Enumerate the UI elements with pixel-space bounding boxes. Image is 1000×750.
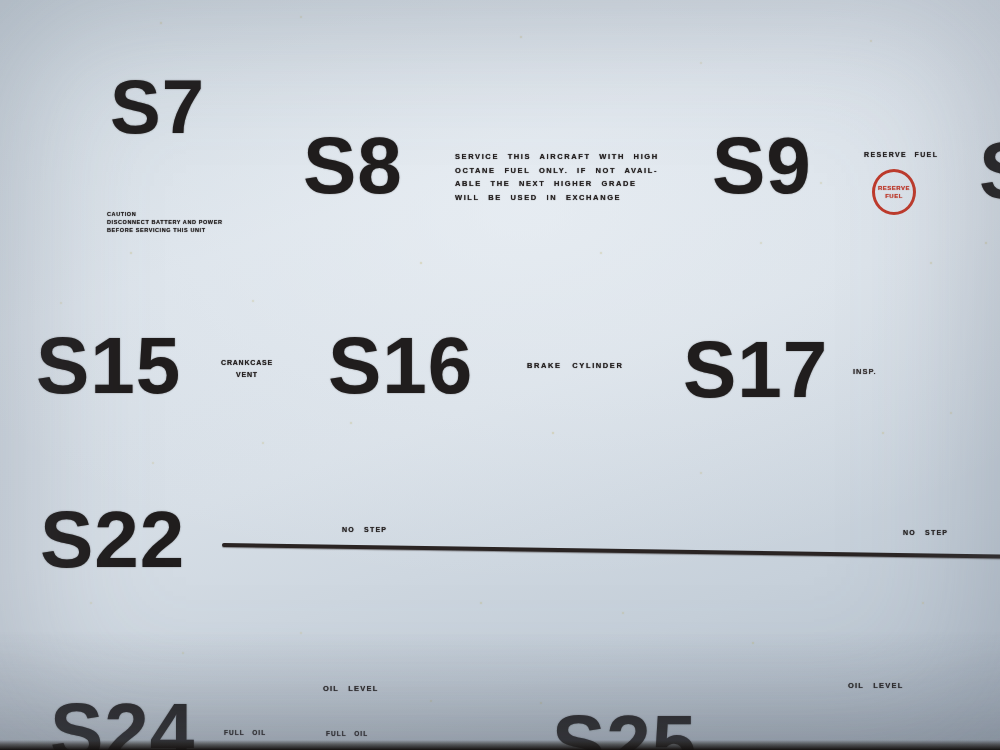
stencil-number-s17: S17 xyxy=(683,330,828,410)
stencil-text-caution: CAUTION DISCONNECT BATTERY AND POWER BEF… xyxy=(107,210,223,234)
stencil-text-oil-level-left: OIL LEVEL xyxy=(323,684,378,693)
stencil-number-s8: S8 xyxy=(303,126,403,206)
stencil-number-s15: S15 xyxy=(36,326,181,406)
caution-line-3: BEFORE SERVICING THIS UNIT xyxy=(107,226,223,234)
stencil-number-s16: S16 xyxy=(328,326,473,406)
reserve-fuel-roundel-icon: RESERVE FUEL xyxy=(872,169,916,215)
stencil-number-s22: S22 xyxy=(40,500,185,580)
fuel-service-line-3: ABLE THE NEXT HIGHER GRADE xyxy=(455,177,659,191)
stencil-text-no-step-left: NO STEP xyxy=(342,526,387,533)
stencil-number-s9: S9 xyxy=(712,126,812,206)
caution-line-2: DISCONNECT BATTERY AND POWER xyxy=(107,218,223,226)
stencil-text-fragment-1: FULL OIL xyxy=(224,729,266,736)
fuel-service-line-2: OCTANE FUEL ONLY. IF NOT AVAIL- xyxy=(455,164,659,178)
fuel-service-line-1: SERVICE THIS AIRCRAFT WITH HIGH xyxy=(455,150,659,164)
stencil-markings-layer: S7 CAUTION DISCONNECT BATTERY AND POWER … xyxy=(0,0,1000,750)
walkway-line-decal xyxy=(222,543,1000,558)
sheet-bottom-edge xyxy=(0,740,1000,750)
roundel-line-2: FUEL xyxy=(885,192,903,200)
stencil-text-oil-level-right: OIL LEVEL xyxy=(848,681,903,690)
crankcase-line-2: VENT xyxy=(211,369,283,381)
decal-sheet-photo: { "colors": { "paper_light": "#d8e0e8", … xyxy=(0,0,1000,750)
stencil-text-reserve-fuel: RESERVE FUEL xyxy=(864,151,938,158)
stencil-number-partial: S xyxy=(979,131,1000,211)
stencil-text-fragment-2: FULL OIL xyxy=(326,730,368,737)
stencil-number-s7: S7 xyxy=(110,69,205,145)
stencil-text-brake-cylinder: BRAKE CYLINDER xyxy=(527,361,624,370)
stencil-text-insp: INSP. xyxy=(853,367,877,376)
roundel-line-1: RESERVE xyxy=(878,184,910,192)
stencil-text-fuel-service: SERVICE THIS AIRCRAFT WITH HIGH OCTANE F… xyxy=(455,150,659,204)
stencil-text-no-step-right: NO STEP xyxy=(903,529,948,536)
stencil-text-crankcase-vent: CRANKCASE VENT xyxy=(211,357,283,381)
crankcase-line-1: CRANKCASE xyxy=(211,357,283,369)
caution-line-1: CAUTION xyxy=(107,210,223,218)
fuel-service-line-4: WILL BE USED IN EXCHANGE xyxy=(455,191,659,205)
